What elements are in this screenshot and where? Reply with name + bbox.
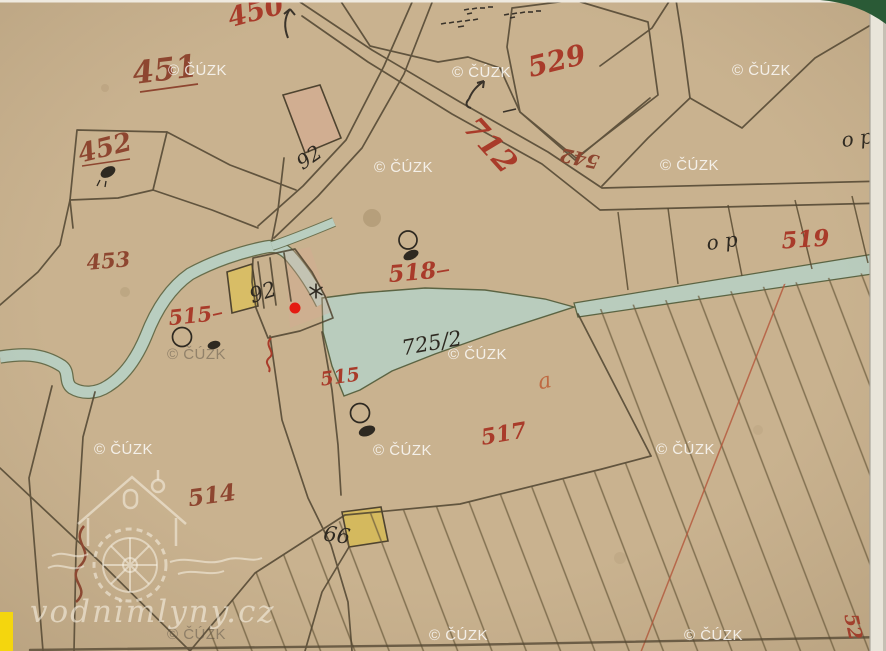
cuzk-watermark: © ČÚZK [167, 346, 226, 363]
top-edge-line [0, 0, 886, 3]
cuzk-watermark: © ČÚZK [732, 62, 791, 79]
cuzk-watermark: © ČÚZK [374, 159, 433, 176]
map-viewport: 450 451 452 453 529 712 542 519 518 515 … [0, 0, 886, 651]
yellow-edge-highlight [0, 612, 13, 651]
map-marker-dot[interactable] [290, 303, 301, 314]
cuzk-watermark: © ČÚZK [168, 62, 227, 79]
paper-vignette [0, 0, 886, 651]
cuzk-watermark: © ČÚZK [94, 441, 153, 458]
vodnimlyny-watermark: vodnimlyny.cz [30, 594, 276, 630]
map-canvas: 450 451 452 453 529 712 542 519 518 515 … [0, 0, 886, 651]
cuzk-watermark: © ČÚZK [656, 441, 715, 458]
cuzk-watermark: © ČÚZK [684, 627, 743, 644]
cuzk-watermark: © ČÚZK [452, 64, 511, 81]
cuzk-watermark: © ČÚZK [373, 442, 432, 459]
cuzk-watermark: © ČÚZK [448, 346, 507, 363]
cuzk-watermark: © ČÚZK [660, 157, 719, 174]
cuzk-watermark: © ČÚZK [429, 627, 488, 644]
